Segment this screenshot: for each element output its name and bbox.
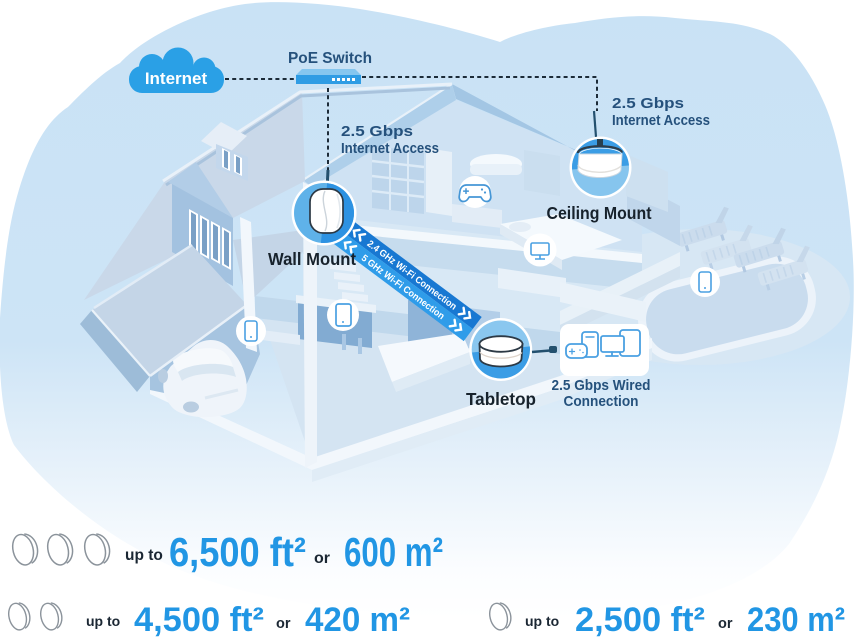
svg-text:2.5 Gbps: 2.5 Gbps [341, 123, 413, 140]
svg-text:420 m²: 420 m² [305, 601, 410, 639]
svg-text:or: or [314, 550, 330, 567]
svg-text:230 m²: 230 m² [747, 601, 845, 639]
svg-text:Ceiling Mount: Ceiling Mount [547, 203, 652, 223]
svg-text:2.5 Gbps: 2.5 Gbps [612, 95, 684, 112]
svg-text:up to: up to [525, 613, 559, 629]
svg-text:Connection: Connection [564, 393, 639, 410]
svg-text:2,500 ft²: 2,500 ft² [575, 601, 705, 639]
svg-text:or: or [276, 616, 291, 632]
svg-text:Internet Access: Internet Access [341, 140, 439, 157]
svg-text:6,500 ft²: 6,500 ft² [169, 529, 306, 575]
svg-text:Wall Mount: Wall Mount [268, 249, 356, 269]
svg-text:Internet: Internet [145, 69, 208, 88]
svg-text:PoE Switch: PoE Switch [288, 50, 372, 67]
svg-text:600 m²: 600 m² [344, 529, 443, 575]
svg-text:4,500 ft²: 4,500 ft² [134, 601, 264, 639]
svg-text:up to: up to [125, 547, 163, 564]
svg-text:up to: up to [86, 613, 120, 629]
svg-text:Tabletop: Tabletop [466, 389, 536, 409]
svg-text:or: or [718, 616, 733, 632]
svg-text:2.5 Gbps Wired: 2.5 Gbps Wired [552, 377, 651, 394]
svg-text:Internet Access: Internet Access [612, 112, 710, 129]
